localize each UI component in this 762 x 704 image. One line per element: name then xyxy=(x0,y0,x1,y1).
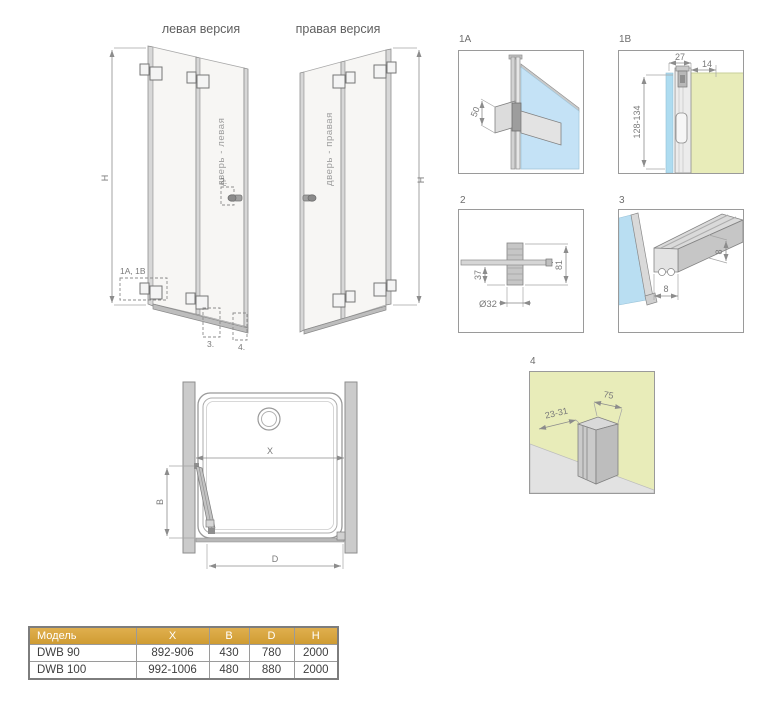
dim-8-height-label: 8 xyxy=(714,249,724,254)
cell-b: 430 xyxy=(209,645,249,662)
header-model: Модель xyxy=(29,627,136,645)
width-dimension: 8 xyxy=(654,274,678,300)
detail-4-label: 4 xyxy=(530,356,536,367)
dim-14-label: 14 xyxy=(702,59,712,69)
height-dim-label: H xyxy=(416,177,426,184)
callout-threshold-label: 3. xyxy=(207,339,214,349)
header-b: B xyxy=(209,627,249,645)
detail-1b-label: 1B xyxy=(619,34,631,45)
table-row-dwb100: DWB 100 992-1006 480 880 2000 xyxy=(29,662,338,680)
left-door-drawing: H дверь - левая 1A, 1B xyxy=(95,38,265,353)
dim-o32-label: Ø32 xyxy=(479,299,497,310)
dim-50-label: 50 xyxy=(469,105,482,118)
opening-d-dimension: D xyxy=(207,544,343,569)
door-panels xyxy=(148,46,248,333)
door-side-label: дверь - правая xyxy=(324,112,335,186)
header-d: D xyxy=(249,627,294,645)
wall-profile-block xyxy=(578,417,618,484)
wall-profile-section xyxy=(675,66,691,173)
cell-d: 780 xyxy=(249,645,294,662)
spec-table: Модель X B D H DWB 90 892-906 430 780 20… xyxy=(28,626,339,680)
plan-view-drawing: X B D xyxy=(150,370,380,605)
cell-b: 480 xyxy=(209,662,249,680)
inset-dimension: 37 xyxy=(473,267,505,285)
detail-2-drawing: 37 81 Ø32 xyxy=(459,210,583,332)
hinge-width-dimension: 50 xyxy=(469,99,495,133)
table-row-dwb90: DWB 90 892-906 430 780 2000 xyxy=(29,645,338,662)
left-version-title: левая версия xyxy=(130,22,272,36)
detail-1b-panel: 27 14 128-134 xyxy=(618,50,744,174)
wall-section xyxy=(691,73,743,173)
header-x: X xyxy=(136,627,209,645)
dim-75-label: 75 xyxy=(603,389,615,401)
door-handle xyxy=(303,195,316,201)
dim-81-label: 81 xyxy=(554,260,564,270)
right-version-title: правая версия xyxy=(267,22,409,36)
detail-4-drawing: 23-31 75 xyxy=(530,372,654,493)
diameter-dimension: Ø32 xyxy=(479,287,531,310)
cell-model: DWB 90 xyxy=(29,645,136,662)
technical-drawing-sheet: левая версия правая версия H xyxy=(0,0,762,704)
towel-rod xyxy=(461,259,553,266)
callout-handle-label: 2. xyxy=(220,176,227,186)
height-dim-label: H xyxy=(100,175,110,182)
detail-1a-drawing: 50 xyxy=(459,51,583,173)
spec-table-header-row: Модель X B D H xyxy=(29,627,338,645)
door-handle xyxy=(228,195,242,201)
cell-d: 880 xyxy=(249,662,294,680)
dim-x-label: X xyxy=(267,446,273,456)
dim-27-label: 27 xyxy=(675,52,685,62)
detail-4-panel: 23-31 75 xyxy=(529,371,655,494)
callout-hinge-label: 1A, 1B xyxy=(120,266,146,276)
detail-1a-label: 1A xyxy=(459,34,471,45)
cell-x: 892-906 xyxy=(136,645,209,662)
detail-1b-drawing: 27 14 128-134 xyxy=(619,51,743,173)
detail-2-label: 2 xyxy=(460,195,466,206)
cell-model: DWB 100 xyxy=(29,662,136,680)
detail-3-label: 3 xyxy=(619,195,625,206)
detail-3-drawing: 8 8 xyxy=(619,210,743,332)
header-h: H xyxy=(294,627,338,645)
dim-128-134-label: 128-134 xyxy=(632,105,642,138)
right-door-drawing: дверь - правая H xyxy=(290,38,435,353)
cell-h: 2000 xyxy=(294,645,338,662)
detail-2-panel: 37 81 Ø32 xyxy=(458,209,584,333)
dim-37-label: 37 xyxy=(473,270,483,280)
dim-8-width-label: 8 xyxy=(663,284,668,294)
cell-h: 2000 xyxy=(294,662,338,680)
detail-3-panel: 8 8 xyxy=(618,209,744,333)
glass-strip xyxy=(666,73,673,173)
cell-x: 992-1006 xyxy=(136,662,209,680)
callout-wall-profile-label: 4. xyxy=(238,342,245,352)
dim-b-label: B xyxy=(155,499,165,505)
drain xyxy=(258,408,280,430)
detail-1a-panel: 50 xyxy=(458,50,584,174)
glass-edge xyxy=(619,213,657,305)
threshold-profile xyxy=(654,214,743,276)
height-dimension: H xyxy=(393,48,426,305)
dim-d-label: D xyxy=(272,554,279,564)
